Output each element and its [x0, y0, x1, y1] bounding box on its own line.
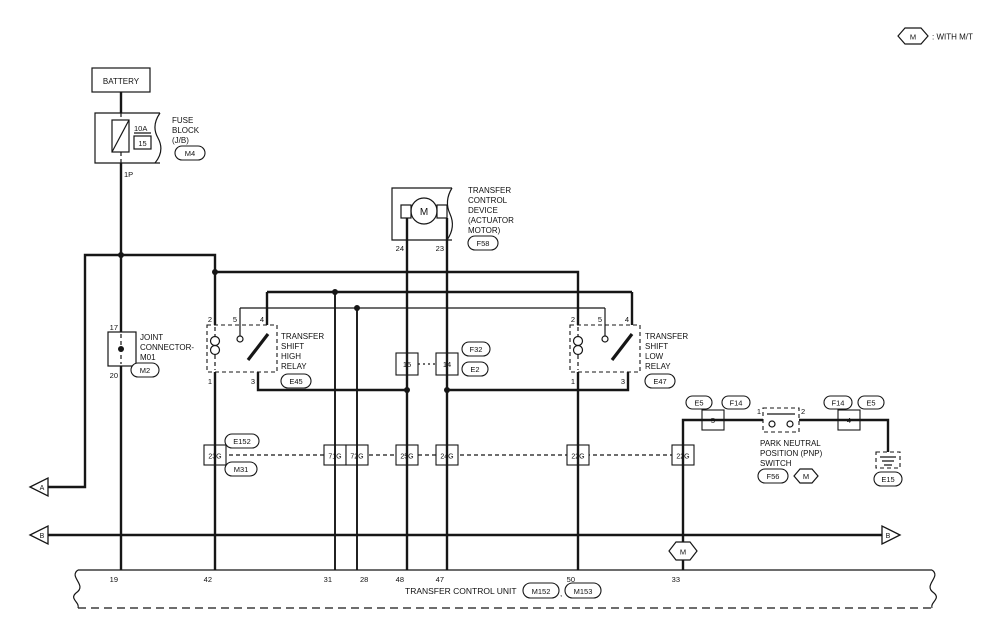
transfer-control-unit: 19 42 31 28 48 47 50 33 TRANSFER CONTROL… [74, 570, 937, 608]
row-connector-25g: 25G [400, 454, 413, 461]
pnp-connector: F56 [767, 472, 780, 481]
joint-connector-pin-20: 20 [110, 371, 118, 380]
low-relay-label: TRANSFER [645, 332, 688, 341]
legend-mt-marker: M [910, 33, 916, 42]
high-relay-pin-3: 3 [251, 377, 255, 386]
low-relay-label: LOW [645, 352, 664, 361]
fuse-block-label: FUSE [172, 116, 193, 125]
pnp-inline-connector-4: 4 [847, 416, 851, 425]
high-relay-pin-4: 4 [260, 315, 264, 324]
ground-icon [876, 452, 900, 468]
tcu-separator: , [560, 589, 562, 598]
pnp-mt-marker: M [803, 472, 809, 481]
arrow-b-left-label: B [40, 533, 45, 540]
pnp-oval-f14-right: F14 [832, 399, 845, 408]
tcu-pin-33: 33 [672, 575, 680, 584]
fuse-number: 15 [138, 139, 146, 148]
tcu-pin-28: 28 [360, 575, 368, 584]
tcu-pin-31: 31 [324, 575, 332, 584]
row-connector-22g-left: 22G [571, 454, 584, 461]
pnp-oval-e5-left: E5 [694, 399, 703, 408]
low-relay-pin-3: 3 [621, 377, 625, 386]
pnp-oval-e5-right: E5 [866, 399, 875, 408]
joint-connector-ref: M2 [140, 366, 150, 375]
row-connector-m31: M31 [234, 465, 249, 474]
low-relay-label: RELAY [645, 362, 671, 371]
ground-connector: E15 [881, 475, 894, 484]
fuse-block-connector: M4 [185, 149, 195, 158]
transfer-shift-high-relay: 2 5 4 1 3 TRANSFER SHIFT HIGH RELAY E45 [207, 315, 324, 388]
high-relay-label: TRANSFER [281, 332, 324, 341]
row-connector-23g: 23G [208, 454, 221, 461]
high-relay-label: HIGH [281, 352, 301, 361]
high-relay-label: RELAY [281, 362, 307, 371]
motor-label: (ACTUATOR [468, 216, 514, 225]
high-relay-connector: E45 [289, 377, 302, 386]
mid-connector-e2: E2 [470, 365, 479, 374]
joint-connector-label: M01 [140, 353, 156, 362]
joint-connector-pin-17: 17 [110, 323, 118, 332]
low-relay-label: SHIFT [645, 342, 668, 351]
row-connector-72g: 72G [350, 454, 363, 461]
pnp-pin-2: 2 [801, 407, 805, 416]
legend-with-mt: M : WITH M/T [898, 28, 973, 44]
relay-coil-icon [211, 337, 220, 346]
high-relay-pin-5: 5 [233, 315, 237, 324]
wires [48, 92, 888, 570]
row-connector-e152: E152 [233, 437, 251, 446]
low-relay-pin-5: 5 [598, 315, 602, 324]
high-relay-pin-1: 1 [208, 377, 212, 386]
motor-symbol: M [420, 207, 428, 218]
low-relay-pin-1: 1 [571, 377, 575, 386]
mid-connector-f32: F32 [470, 345, 483, 354]
tcu-connector-m152: M152 [532, 587, 551, 596]
low-relay-pin-2: 2 [571, 315, 575, 324]
pnp-label: PARK NEUTRAL [760, 439, 821, 448]
battery-label: BATTERY [103, 77, 140, 86]
transfer-control-device: M 24 23 TRANSFER CONTROL DEVICE (ACTUATO… [392, 186, 514, 253]
wire-1p-label: 1P [124, 170, 133, 179]
arrow-a-label: A [40, 485, 45, 492]
relay-contact-arm [612, 334, 632, 360]
row-connector-71g: 71G [328, 454, 341, 461]
high-relay-pin-2: 2 [208, 315, 212, 324]
wiring-diagram: BATTERY 10A 15 FUSE BLOCK (J/B) M4 1P M … [0, 0, 995, 644]
tcu-label: TRANSFER CONTROL UNIT [405, 586, 517, 596]
fuse-block: 10A 15 FUSE BLOCK (J/B) M4 1P [95, 113, 205, 179]
relay-contact-arm [248, 334, 268, 360]
mid-connector-14: 14 [443, 360, 451, 369]
relay-coil-icon [574, 337, 583, 346]
pnp-label: SWITCH [760, 459, 792, 468]
pnp-pin-1: 1 [757, 407, 761, 416]
relay-contact-pivot [602, 336, 608, 342]
pnp-switch-contact [787, 421, 793, 427]
relay-coil-icon [574, 346, 583, 355]
motor-connector: F58 [477, 239, 490, 248]
row-connector-22g-right: 22G [676, 454, 689, 461]
tcu-pin-47: 47 [436, 575, 444, 584]
tcu-pin-48: 48 [396, 575, 404, 584]
motor-brush-left [401, 205, 411, 218]
pnp-switch-contact [769, 421, 775, 427]
fuse-block-label: BLOCK [172, 126, 200, 135]
motor-label: TRANSFER [468, 186, 511, 195]
relay-coil-icon [211, 346, 220, 355]
high-relay-label: SHIFT [281, 342, 304, 351]
branch-mt-marker: M [680, 548, 686, 557]
arrow-b-right-label: B [886, 533, 891, 540]
pnp-switch-box [763, 408, 799, 432]
motor-label: DEVICE [468, 206, 498, 215]
tcu-pin-19: 19 [110, 575, 118, 584]
fuse-block-wavy-edge [155, 113, 161, 163]
pnp-inline-connector-5: 5 [711, 416, 715, 425]
motor-label: CONTROL [468, 196, 508, 205]
low-relay-pin-4: 4 [625, 315, 629, 324]
high-relay-box [207, 325, 277, 372]
motor-pin-24: 24 [396, 244, 404, 253]
joint-connector-label: CONNECTOR- [140, 343, 194, 352]
joint-connector-label: JOINT [140, 333, 163, 342]
tcu-left-end [74, 570, 80, 608]
motor-brush-right [437, 205, 447, 218]
motor-label: MOTOR) [468, 226, 501, 235]
tcu-pin-42: 42 [204, 575, 212, 584]
fuse-block-label: (J/B) [172, 136, 189, 145]
mid-connector-15: 15 [403, 360, 411, 369]
low-relay-connector: E47 [653, 377, 666, 386]
tcu-right-end [930, 570, 936, 608]
joint-connector-dot [118, 346, 124, 352]
row-connector-24g: 24G [440, 454, 453, 461]
fuse-rating: 10A [134, 124, 147, 133]
tcu-connector-m153: M153 [574, 587, 593, 596]
legend-mt-label: : WITH M/T [932, 33, 973, 42]
pnp-oval-f14-left: F14 [730, 399, 743, 408]
pnp-label: POSITION (PNP) [760, 449, 823, 458]
relay-contact-pivot [237, 336, 243, 342]
motor-pin-23: 23 [436, 244, 444, 253]
